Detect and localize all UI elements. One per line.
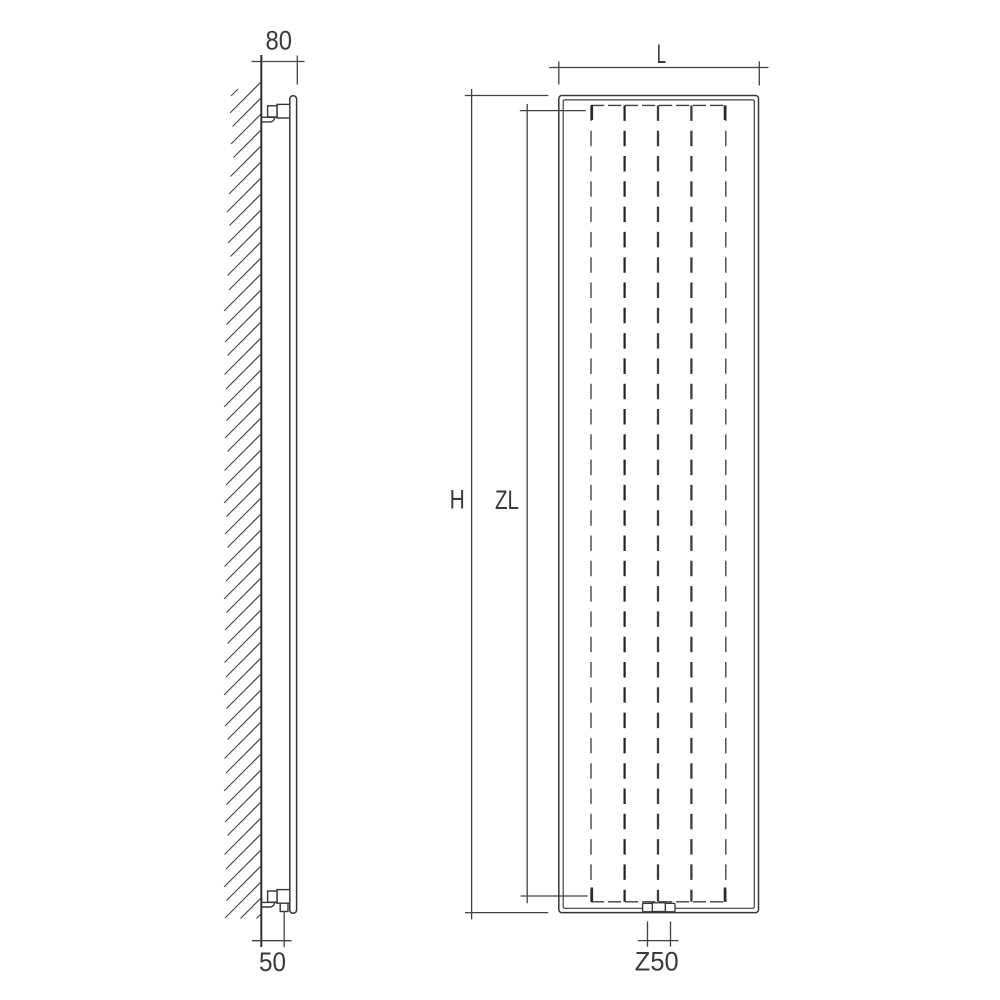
svg-text:80: 80 bbox=[266, 25, 293, 55]
svg-text:50: 50 bbox=[259, 947, 286, 977]
svg-text:ZL: ZL bbox=[495, 485, 519, 515]
svg-text:Z50: Z50 bbox=[635, 947, 679, 977]
svg-text:L: L bbox=[657, 39, 667, 69]
svg-text:H: H bbox=[450, 485, 465, 515]
